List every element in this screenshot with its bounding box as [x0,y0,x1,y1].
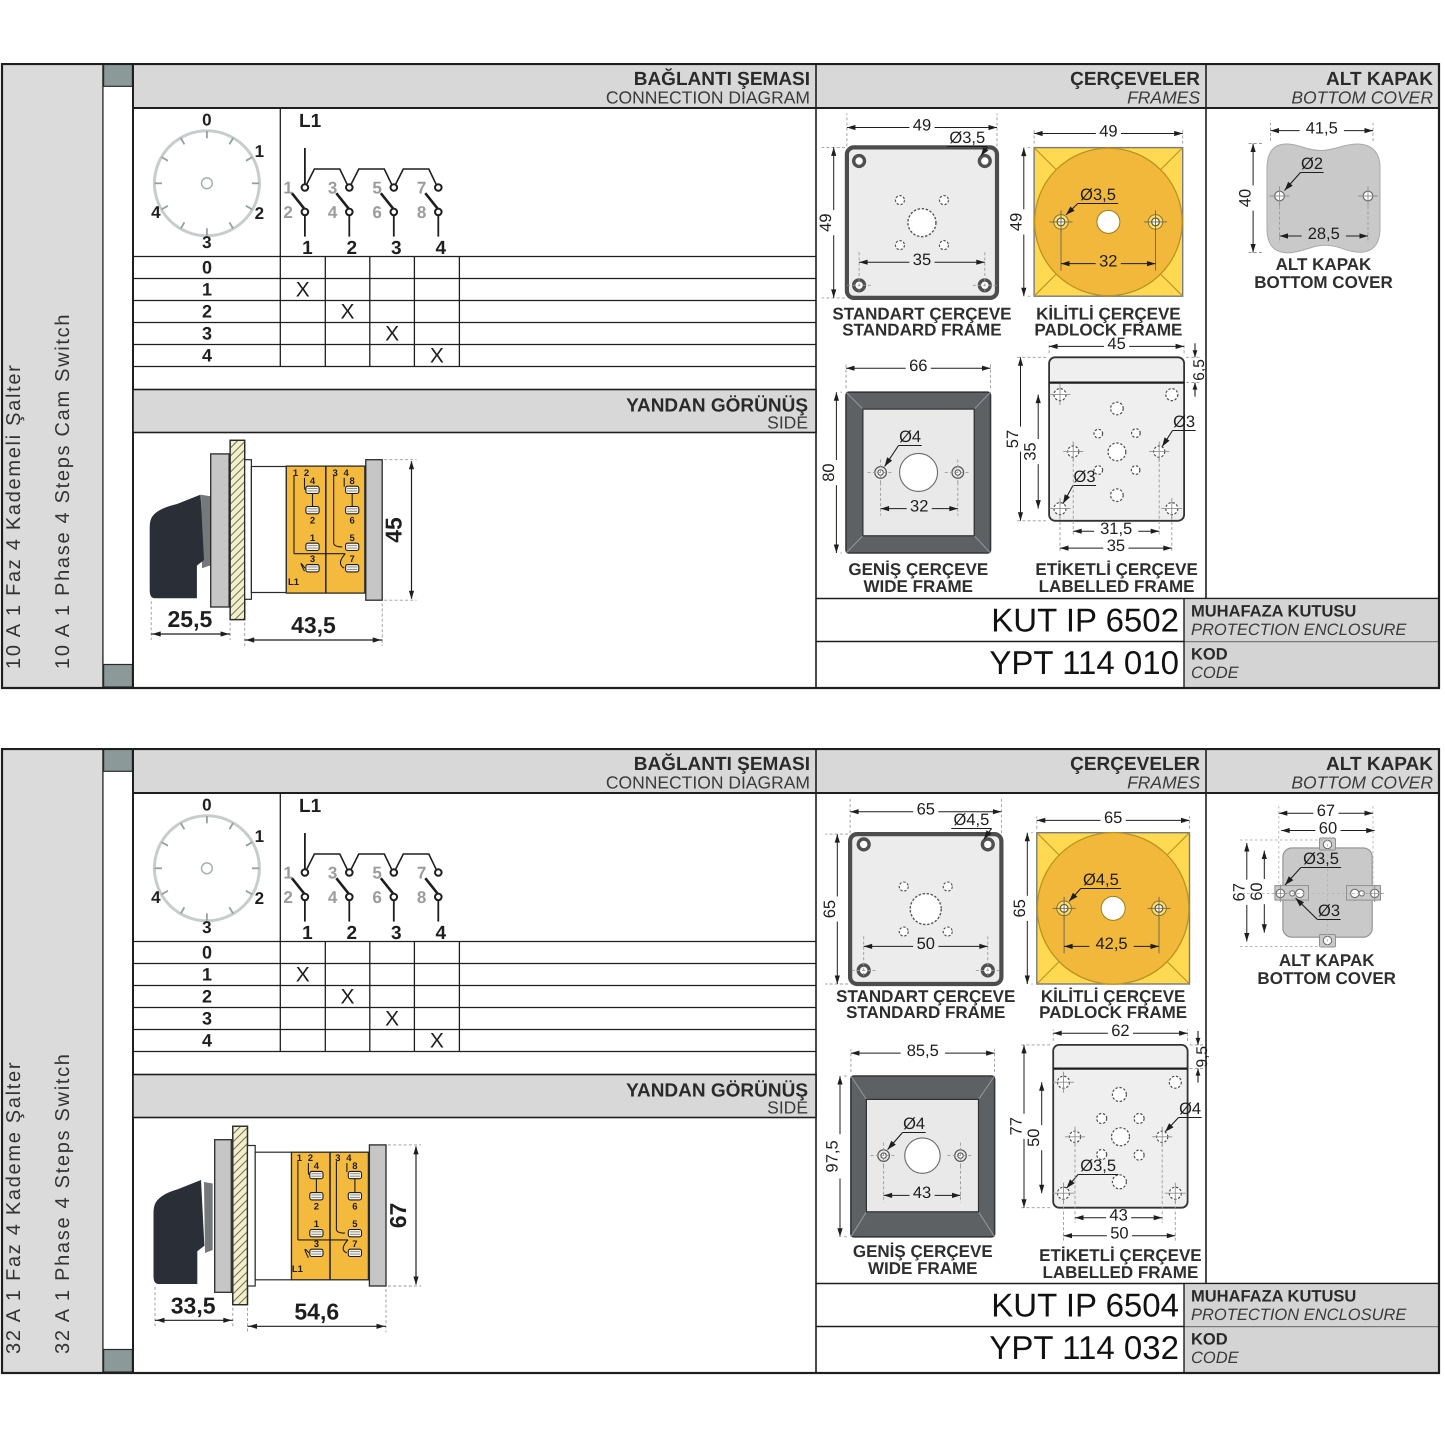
svg-text:X: X [430,1030,444,1053]
svg-text:YPT 114 032: YPT 114 032 [989,1329,1179,1366]
svg-text:Ø2: Ø2 [1301,155,1323,173]
svg-text:2: 2 [347,923,358,944]
svg-text:97,5: 97,5 [824,1140,842,1172]
svg-text:40: 40 [1237,189,1255,207]
svg-text:32: 32 [910,497,928,515]
svg-text:BOTTOM COVER: BOTTOM COVER [1254,273,1393,292]
svg-text:2: 2 [283,203,292,222]
svg-text:X: X [341,986,355,1009]
svg-text:PADLOCK FRAME: PADLOCK FRAME [1039,1003,1187,1022]
svg-text:6,5: 6,5 [1191,359,1208,381]
svg-text:L1: L1 [288,577,300,588]
svg-text:5: 5 [372,864,381,883]
svg-text:77: 77 [1008,1117,1026,1135]
svg-text:1: 1 [293,468,299,479]
svg-text:3: 3 [391,923,402,944]
svg-text:FRAMES: FRAMES [1127,773,1200,793]
svg-text:60: 60 [1248,882,1266,900]
svg-text:CODE: CODE [1191,664,1240,682]
svg-text:1: 1 [297,1153,303,1164]
svg-text:0: 0 [202,943,212,963]
svg-text:62: 62 [1111,1022,1129,1040]
svg-text:Ø4: Ø4 [903,1115,925,1133]
svg-text:50: 50 [1025,1129,1043,1147]
svg-text:4: 4 [328,888,338,907]
svg-text:2: 2 [202,987,212,1007]
svg-text:2: 2 [255,204,264,223]
svg-text:35: 35 [1107,537,1125,555]
svg-text:L1: L1 [299,111,322,132]
svg-text:SIDE: SIDE [767,1098,808,1118]
svg-text:10 A 1 Faz 4 Kademeli Şalter: 10 A 1 Faz 4 Kademeli Şalter [3,363,25,669]
svg-text:65: 65 [917,801,935,819]
svg-text:0: 0 [202,258,212,278]
svg-text:2: 2 [255,889,264,908]
svg-text:L1: L1 [292,1264,304,1275]
svg-text:0: 0 [202,111,211,130]
svg-text:4: 4 [314,1161,320,1172]
svg-text:49: 49 [1099,122,1117,140]
svg-text:CONNECTION DIAGRAM: CONNECTION DIAGRAM [606,773,810,793]
svg-text:Ø4,5: Ø4,5 [1083,871,1119,889]
svg-text:43: 43 [1109,1207,1127,1225]
svg-text:1: 1 [314,1219,320,1230]
svg-text:Ø4: Ø4 [899,428,921,446]
svg-text:65: 65 [821,900,839,918]
svg-text:MUHAFAZA KUTUSU: MUHAFAZA KUTUSU [1191,603,1356,621]
svg-text:5: 5 [350,533,356,544]
svg-text:28,5: 28,5 [1308,225,1340,243]
svg-text:3: 3 [333,468,338,479]
svg-text:Ø3,5: Ø3,5 [1303,850,1339,868]
svg-text:1: 1 [283,864,292,883]
svg-text:54,6: 54,6 [294,1298,339,1324]
svg-text:ALT KAPAK: ALT KAPAK [1279,951,1375,970]
svg-text:Ø4: Ø4 [1179,1100,1201,1118]
svg-text:50: 50 [917,935,935,953]
svg-text:2: 2 [202,302,212,322]
svg-text:8: 8 [352,1161,357,1172]
svg-text:1: 1 [255,142,264,161]
svg-text:2: 2 [304,468,309,479]
svg-text:67: 67 [1317,802,1335,820]
svg-text:35: 35 [1022,442,1040,460]
svg-text:1: 1 [202,965,212,985]
svg-text:45: 45 [381,517,407,543]
svg-text:85,5: 85,5 [907,1042,939,1060]
svg-text:60: 60 [1319,819,1337,837]
svg-text:65: 65 [1011,899,1029,917]
svg-text:80: 80 [820,463,838,481]
svg-text:4: 4 [436,923,447,944]
svg-text:3: 3 [328,864,337,883]
svg-text:42,5: 42,5 [1095,935,1127,953]
svg-text:X: X [430,345,444,368]
svg-text:L1: L1 [299,796,322,817]
svg-text:2: 2 [283,888,292,907]
svg-text:BOTTOM COVER: BOTTOM COVER [1291,88,1433,108]
svg-text:4: 4 [151,888,161,907]
svg-text:49: 49 [1007,213,1025,231]
svg-text:Ø3: Ø3 [1073,468,1095,486]
svg-text:BOTTOM COVER: BOTTOM COVER [1257,969,1396,988]
svg-text:WIDE FRAME: WIDE FRAME [863,577,973,596]
svg-text:8: 8 [350,476,355,487]
svg-text:X: X [385,1008,399,1031]
svg-text:6: 6 [372,888,381,907]
svg-text:ALT KAPAK: ALT KAPAK [1276,255,1372,274]
svg-text:CODE: CODE [1191,1349,1240,1367]
svg-text:4: 4 [202,1031,212,1051]
svg-text:35: 35 [913,251,931,269]
svg-text:BOTTOM COVER: BOTTOM COVER [1291,773,1433,793]
svg-text:LABELLED FRAME: LABELLED FRAME [1039,577,1195,596]
svg-text:8: 8 [417,203,426,222]
svg-text:KUT IP 6504: KUT IP 6504 [991,1287,1179,1324]
svg-text:STANDARD FRAME: STANDARD FRAME [846,1003,1005,1022]
svg-text:6: 6 [352,1202,357,1213]
svg-text:49: 49 [913,116,931,134]
svg-text:X: X [296,279,310,302]
svg-text:SIDE: SIDE [767,413,808,433]
svg-text:X: X [296,964,310,987]
svg-text:9,5: 9,5 [1194,1046,1211,1068]
svg-text:STANDARD FRAME: STANDARD FRAME [842,321,1001,340]
svg-text:66: 66 [909,357,927,375]
svg-text:PROTECTION ENCLOSURE: PROTECTION ENCLOSURE [1191,621,1407,639]
svg-text:67: 67 [385,1203,411,1229]
svg-text:1: 1 [255,827,264,846]
svg-text:25,5: 25,5 [168,606,213,632]
svg-text:45: 45 [1107,335,1125,353]
svg-text:49: 49 [817,213,835,231]
svg-text:3: 3 [202,324,212,344]
svg-text:5: 5 [352,1219,358,1230]
svg-text:1: 1 [310,533,316,544]
svg-text:2: 2 [310,516,315,527]
svg-text:Ø3: Ø3 [1173,413,1195,431]
svg-text:33,5: 33,5 [171,1292,216,1318]
svg-text:1: 1 [283,179,292,198]
svg-text:6: 6 [350,516,355,527]
svg-text:7: 7 [352,1239,357,1250]
svg-text:2: 2 [314,1202,319,1213]
svg-text:31,5: 31,5 [1100,520,1132,538]
svg-text:65: 65 [1104,809,1122,827]
svg-text:3: 3 [310,554,315,565]
svg-text:X: X [341,301,355,324]
svg-text:50: 50 [1110,1225,1128,1243]
svg-text:7: 7 [417,864,426,883]
svg-text:41,5: 41,5 [1306,119,1338,137]
svg-text:PROTECTION ENCLOSURE: PROTECTION ENCLOSURE [1191,1306,1407,1324]
svg-text:32 A 1 Phase 4 Steps Switch: 32 A 1 Phase 4 Steps Switch [52,1052,74,1354]
svg-text:Ø3,5: Ø3,5 [949,129,985,147]
svg-text:3: 3 [202,233,211,252]
svg-text:3: 3 [202,918,211,937]
svg-text:5: 5 [372,179,381,198]
svg-text:YPT 114 010: YPT 114 010 [989,644,1179,681]
svg-text:KUT IP 6502: KUT IP 6502 [991,602,1179,639]
svg-text:67: 67 [1230,883,1248,901]
svg-text:3: 3 [314,1239,319,1250]
svg-text:MUHAFAZA KUTUSU: MUHAFAZA KUTUSU [1191,1288,1356,1306]
svg-text:7: 7 [350,554,355,565]
svg-text:4: 4 [328,203,338,222]
svg-text:2: 2 [308,1153,313,1164]
svg-text:Ø3,5: Ø3,5 [1080,186,1116,204]
svg-text:3: 3 [328,179,337,198]
svg-text:6: 6 [372,203,381,222]
svg-text:3: 3 [335,1153,340,1164]
svg-text:8: 8 [417,888,426,907]
svg-text:Ø3,5: Ø3,5 [1080,1157,1116,1175]
svg-text:4: 4 [202,346,212,366]
svg-text:X: X [385,323,399,346]
svg-text:KOD: KOD [1191,1331,1228,1349]
svg-text:4: 4 [151,203,161,222]
svg-text:32 A 1 Faz 4 Kademe Şalter: 32 A 1 Faz 4 Kademe Şalter [3,1061,25,1354]
svg-text:CONNECTION DIAGRAM: CONNECTION DIAGRAM [606,88,810,108]
svg-text:Ø4,5: Ø4,5 [954,811,990,829]
svg-text:32: 32 [1099,252,1117,270]
svg-text:WIDE FRAME: WIDE FRAME [868,1259,978,1278]
svg-text:LABELLED FRAME: LABELLED FRAME [1042,1263,1198,1282]
svg-text:KOD: KOD [1191,646,1228,664]
svg-text:10 A 1 Phase 4 Steps Cam Switc: 10 A 1 Phase 4 Steps Cam Switch [52,313,74,669]
svg-text:0: 0 [202,796,211,815]
svg-text:Ø3: Ø3 [1318,902,1340,920]
svg-text:43,5: 43,5 [291,612,336,638]
svg-text:57: 57 [1004,430,1022,448]
svg-text:1: 1 [202,280,212,300]
svg-text:4: 4 [310,476,316,487]
svg-text:FRAMES: FRAMES [1127,88,1200,108]
svg-text:3: 3 [202,1009,212,1029]
svg-text:1: 1 [302,923,313,944]
svg-text:7: 7 [417,179,426,198]
svg-text:43: 43 [913,1184,931,1202]
